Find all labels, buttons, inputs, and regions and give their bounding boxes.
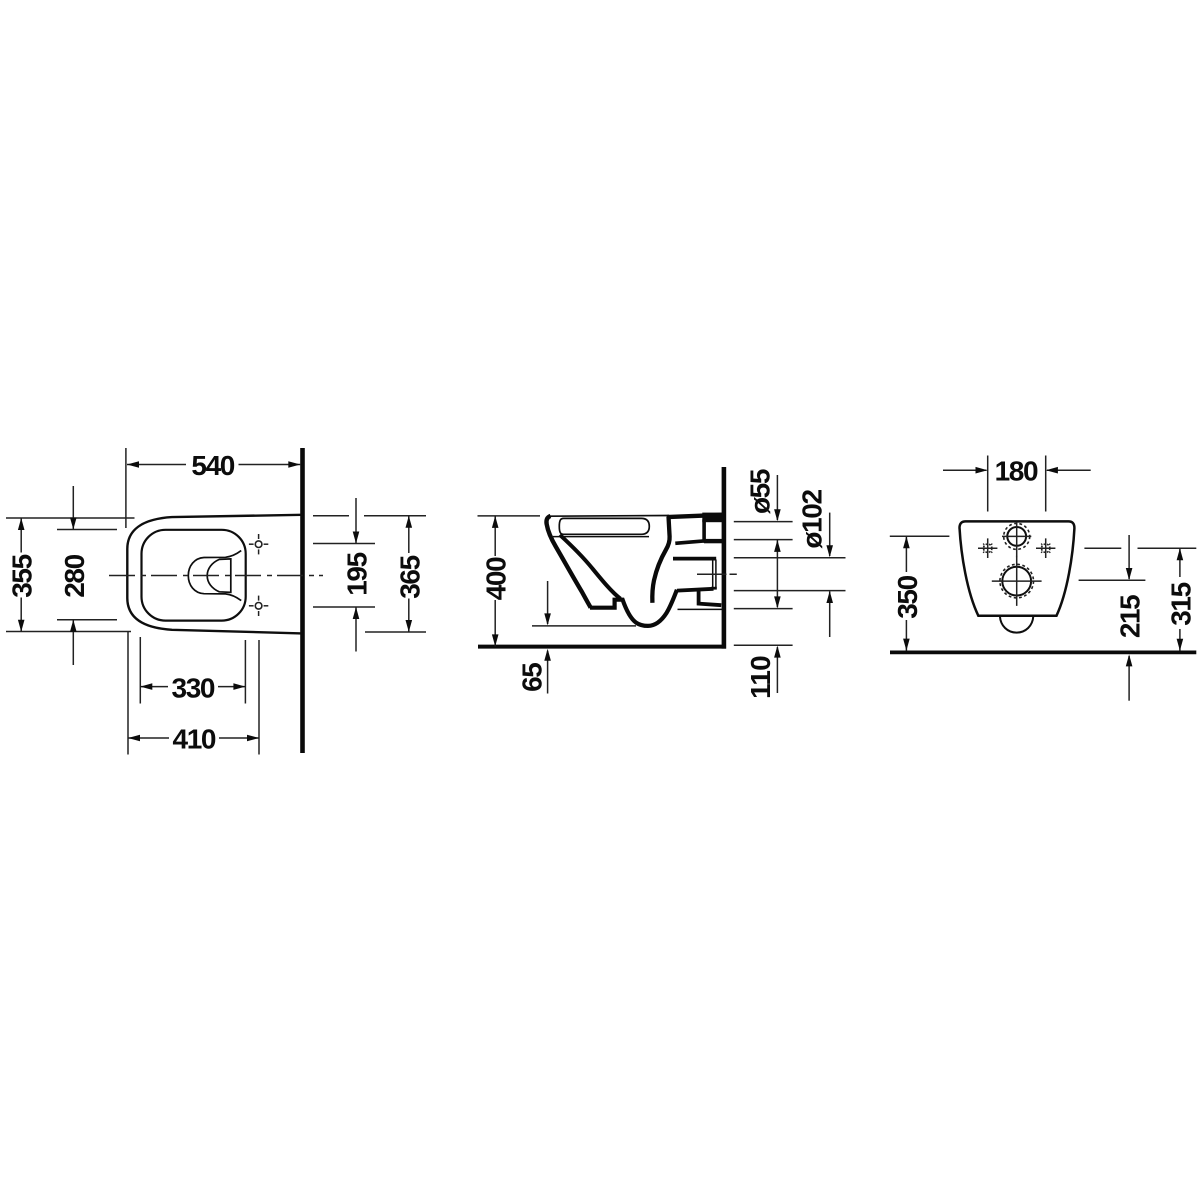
svg-text:280: 280 (59, 554, 90, 597)
svg-text:365: 365 (394, 555, 425, 598)
svg-text:410: 410 (173, 724, 216, 755)
svg-text:ø102: ø102 (797, 490, 828, 549)
svg-text:65: 65 (516, 663, 547, 692)
svg-text:350: 350 (892, 575, 923, 618)
svg-text:400: 400 (481, 557, 512, 600)
svg-text:180: 180 (995, 455, 1038, 486)
svg-text:355: 355 (7, 554, 38, 597)
svg-text:110: 110 (745, 656, 776, 699)
svg-text:540: 540 (191, 450, 234, 481)
svg-text:215: 215 (1115, 595, 1146, 638)
svg-text:195: 195 (342, 552, 373, 595)
svg-text:330: 330 (172, 672, 215, 703)
svg-text:315: 315 (1165, 582, 1196, 625)
svg-text:ø55: ø55 (744, 469, 775, 514)
